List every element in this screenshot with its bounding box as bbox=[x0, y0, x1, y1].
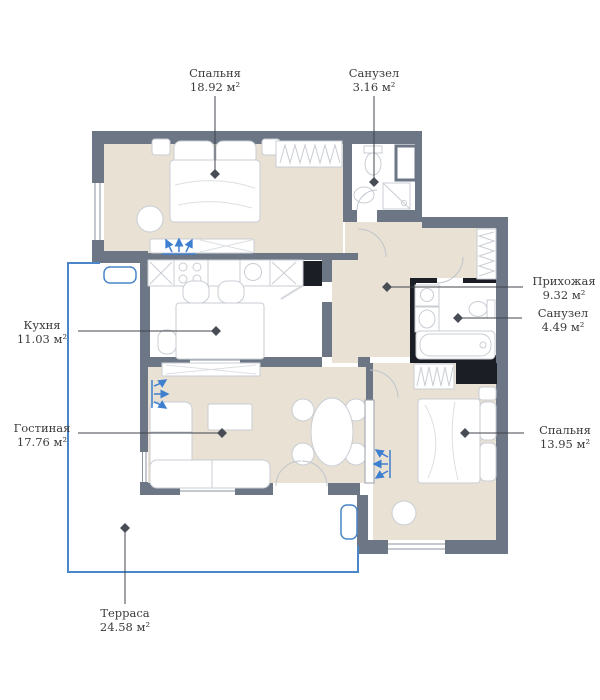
label-living-room: Гостиная 17.76 м² bbox=[0, 421, 87, 449]
floor-hallway-corridor bbox=[332, 260, 358, 363]
room-area: 18.92 м² bbox=[170, 80, 260, 94]
kitchen-shaft bbox=[303, 261, 322, 286]
label-kitchen: Кухня 11.03 м² bbox=[0, 318, 87, 346]
room-area: 17.76 м² bbox=[0, 435, 87, 449]
toilet bbox=[469, 302, 487, 317]
terrace-planter-2 bbox=[341, 505, 357, 539]
label-bedroom-1: Спальня 18.92 м² bbox=[170, 66, 260, 94]
label-bedroom-2: Спальня 13.95 м² bbox=[520, 423, 600, 451]
toilet bbox=[365, 153, 381, 175]
bathroom-1-shaft bbox=[396, 146, 416, 180]
room-name: Спальня bbox=[170, 66, 260, 80]
label-hallway: Прихожая 9.32 м² bbox=[519, 274, 600, 302]
floor-plan: Спальня 18.92 м² Санузел 3.16 м² Прихожа… bbox=[0, 0, 600, 700]
bed bbox=[418, 399, 480, 483]
room-name: Терраса bbox=[80, 606, 170, 620]
chair bbox=[183, 281, 209, 303]
chair bbox=[158, 330, 176, 354]
sofa bbox=[150, 460, 270, 488]
pillow bbox=[480, 443, 496, 481]
chair bbox=[218, 281, 244, 303]
label-bathroom-1: Санузел 3.16 м² bbox=[329, 66, 419, 94]
sliding-door bbox=[365, 400, 374, 483]
room-name: Прихожая bbox=[519, 274, 600, 288]
room-name: Гостиная bbox=[0, 421, 87, 435]
room-name: Спальня bbox=[520, 423, 600, 437]
room-area: 11.03 м² bbox=[0, 332, 87, 346]
chair bbox=[292, 399, 314, 421]
bathtub bbox=[416, 331, 495, 359]
marker-terrace bbox=[120, 523, 130, 533]
shelf bbox=[150, 239, 254, 253]
room-name: Санузел bbox=[518, 306, 600, 320]
floor-plan-drawing bbox=[0, 0, 600, 700]
bedroom-2-shaft bbox=[456, 363, 497, 384]
pillow bbox=[480, 402, 496, 440]
wardrobe bbox=[414, 364, 454, 389]
nightstand bbox=[479, 387, 496, 400]
dining-table bbox=[311, 398, 353, 466]
furniture-hallway bbox=[477, 229, 496, 279]
label-bathroom-2: Санузел 4.49 м² bbox=[518, 306, 600, 334]
room-name: Кухня bbox=[0, 318, 87, 332]
nightstand bbox=[152, 139, 170, 155]
coffee-table bbox=[208, 404, 252, 430]
terrace-planter-1 bbox=[104, 267, 136, 283]
room-area: 3.16 м² bbox=[329, 80, 419, 94]
toilet-tank bbox=[487, 300, 495, 318]
label-terrace: Терраса 24.58 м² bbox=[80, 606, 170, 634]
room-area: 9.32 м² bbox=[519, 288, 600, 302]
room-name: Санузел bbox=[329, 66, 419, 80]
armchair bbox=[392, 501, 416, 525]
floor-hallway-strip bbox=[358, 278, 410, 357]
room-area: 24.58 м² bbox=[80, 620, 170, 634]
room-area: 4.49 м² bbox=[518, 320, 600, 334]
room-area: 13.95 м² bbox=[520, 437, 600, 451]
toilet-tank bbox=[364, 146, 382, 153]
armchair bbox=[137, 206, 163, 232]
